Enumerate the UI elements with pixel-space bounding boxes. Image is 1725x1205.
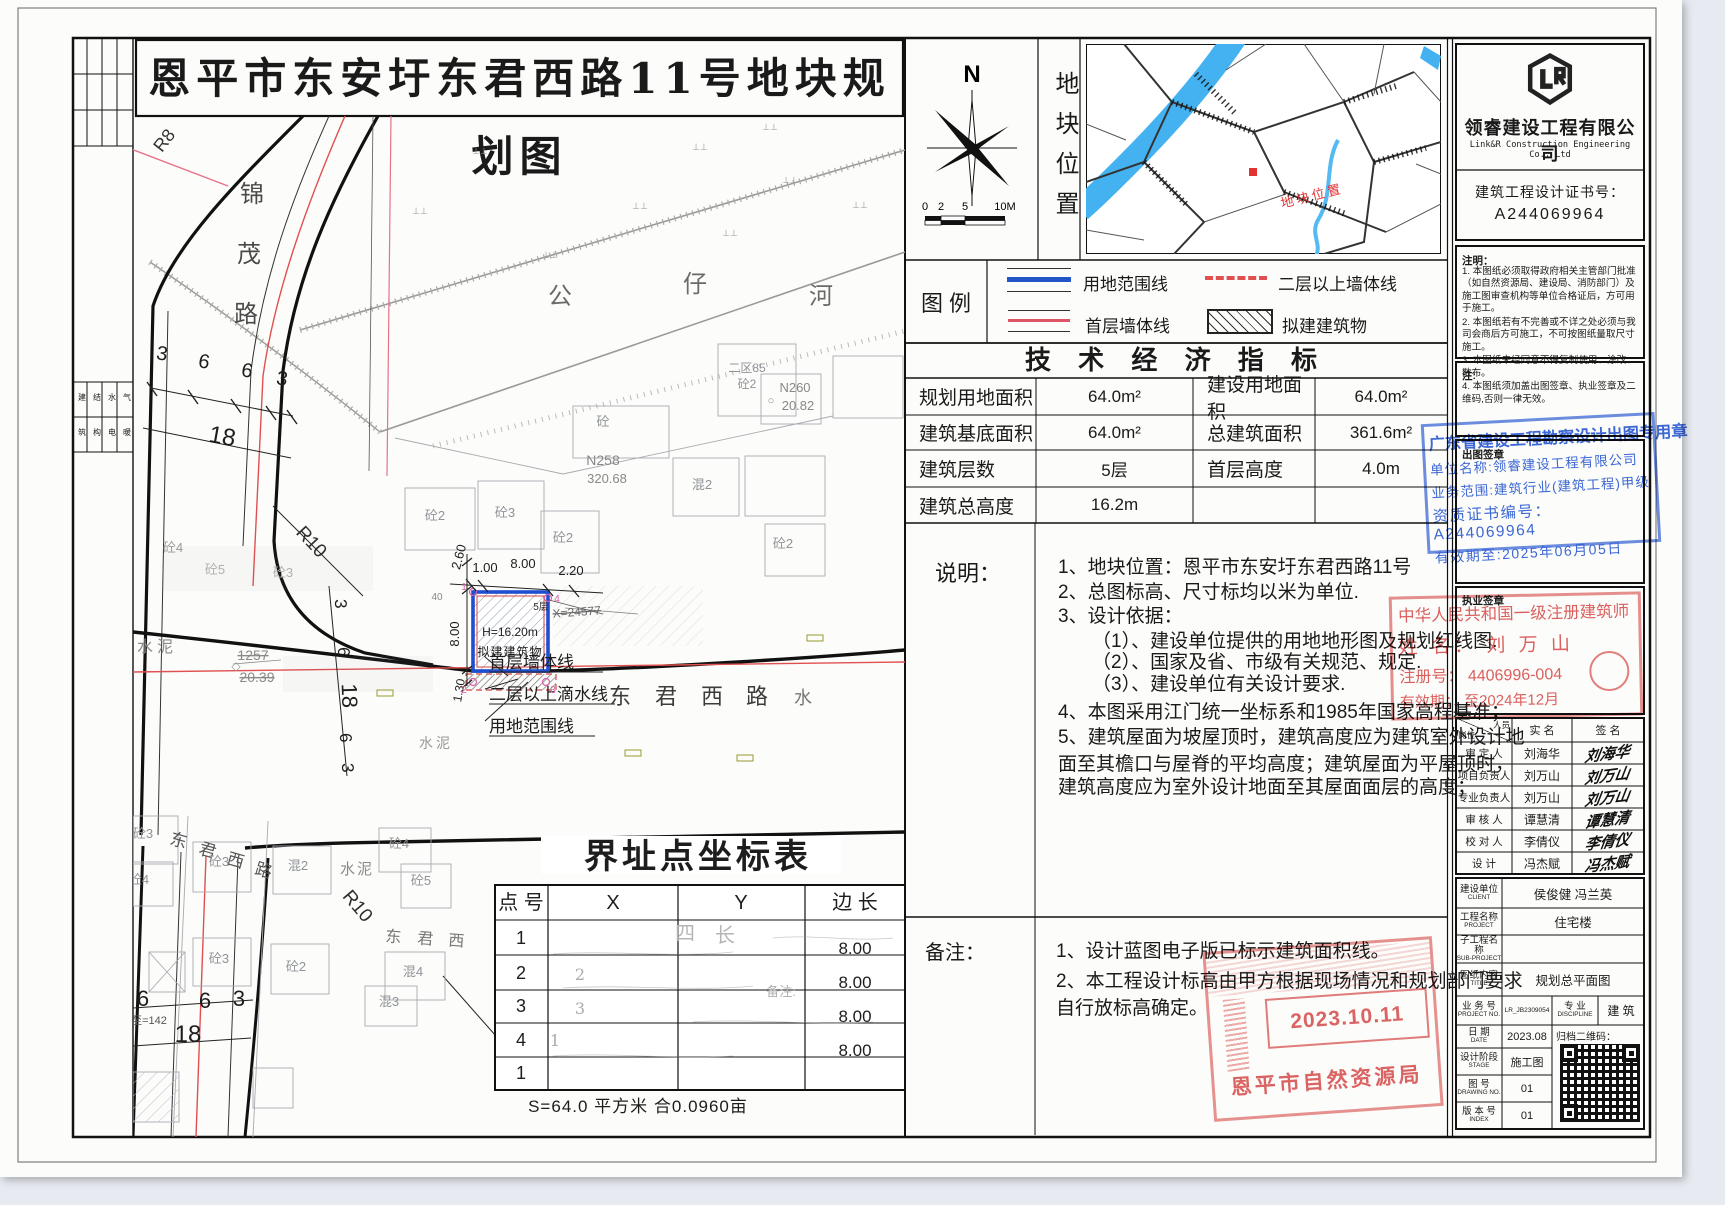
map-label: 3 [338, 763, 357, 773]
personnel-header-sign: 签 名 [1572, 718, 1644, 742]
coord-side-length: 8.00 [838, 1041, 871, 1060]
map-label: 砼5 [205, 562, 225, 577]
red-architect-seal-stamp: 中华人民共和国一级注册建筑师 姓 名： 刘 万 山 注册号： 4406996-0… [1389, 591, 1644, 720]
print-note-line: 4. 本图纸须加盖出图签章、执业签章及二维码,否则一律无效。 [1462, 381, 1640, 406]
project-no-value: LR_JB2309054 [1502, 996, 1552, 1025]
legend-swatch-proposed-building [1207, 309, 1273, 334]
personnel-role: 审 核 人 [1456, 808, 1512, 830]
project-no-label: 业 务 号PROJECT NO. [1456, 996, 1502, 1025]
legend-swatch-upper-wall-line [1205, 276, 1267, 280]
map-label: 路 [746, 684, 768, 709]
map-label: 6 [137, 986, 149, 1011]
map-label: N260 [779, 380, 810, 395]
map-label: 20.82 [782, 398, 815, 413]
coord-header: 点 号 [498, 891, 544, 914]
drawing-no-value: 01 [1502, 1075, 1552, 1102]
map-label: 砼3 [133, 826, 153, 841]
print-note-line: 1. 本图纸必须取得政府相关主管部门批准（如自然资源局、建设局、消防部门）及施工… [1462, 266, 1640, 316]
personnel-role: 项目负责人 [1456, 764, 1512, 786]
personnel-header-pos: 岗位 人员 [1456, 718, 1512, 742]
design-cert-label: 建筑工程设计证书号： [1458, 182, 1642, 202]
page-title: 恩平市东安圩东君西路11号地块规划图 [136, 40, 903, 116]
project-row-value: 侯俊健 冯兰英 [1502, 878, 1644, 908]
map-label: R10 [338, 886, 376, 926]
site-location-marker [1249, 168, 1257, 176]
map-label: ⊥⊥ [632, 201, 648, 211]
map-label: 东 [609, 684, 631, 709]
design-note-line: 1、地块位置：恩平市东安圩东君西路11号 [1058, 552, 1411, 579]
margin-discipline-char: 水 [106, 392, 118, 403]
map-label: 混2 [692, 477, 712, 492]
site-plan-map: 界址点坐标表点 号XY边 长123418.008.008.008.00231四长… [133, 116, 905, 1137]
map-label: 6 [336, 733, 355, 743]
map-label: 砼2 [286, 959, 306, 974]
index-value: 01 [1502, 1102, 1552, 1129]
map-label: 砼4 [133, 872, 149, 887]
map-label: 仔 [683, 271, 707, 298]
margin-discipline-char: 构 [91, 427, 103, 438]
project-row-value: 规划总平面图 [1502, 963, 1644, 996]
personnel-header-name: 实 名 [1512, 718, 1572, 742]
map-label: 8.00 [510, 556, 535, 571]
print-note-line: 2. 本图纸若有不完善或不详之处必须与我司会商后方可施工，不可按图纸量取尺寸施工… [1462, 317, 1640, 354]
map-label: ⊥⊥ [692, 142, 708, 152]
coord-ghost-mark: 备注: [766, 984, 796, 999]
map-label: 东 [385, 927, 402, 946]
discipline-label: 专 业DISCIPLINE [1552, 996, 1598, 1025]
legend-label-first-floor-wall: 首层墙体线 [1085, 312, 1170, 337]
map-label: 3 [550, 685, 556, 696]
discipline-value: 建 筑 [1598, 996, 1644, 1025]
approval-stamp-date-box: 2023.10.11 [1265, 988, 1430, 1049]
map-label: 锦 [240, 181, 264, 208]
svg-text:2: 2 [938, 201, 944, 213]
map-label: 砼2 [773, 536, 793, 551]
company-name-en: Link&R Construction Engineering Co., Ltd [1458, 140, 1642, 160]
map-label: 3 [275, 367, 290, 391]
personnel-name: 刘万山 [1512, 764, 1572, 786]
map-label: 混3 [379, 994, 399, 1009]
map-label: 18 [337, 683, 363, 708]
map-label: 6 [197, 350, 212, 374]
indicator-value: 64.0m² [1036, 415, 1193, 450]
indicator-label: 建设用地面积 [1193, 378, 1315, 415]
map-label: ⊥⊥ [472, 146, 488, 156]
design-note-line: （3）、建设单位有关设计要求. [1092, 669, 1345, 696]
coord-side-length: 8.00 [838, 973, 871, 992]
design-note-line: 建筑高度应为室外设计地面至其屋面面层的高度； [1058, 772, 1476, 799]
indicator-label: 建筑层数 [905, 450, 1036, 487]
stage-value: 施工图 [1502, 1048, 1552, 1075]
personnel-name: 刘万山 [1512, 786, 1572, 808]
personnel-signature: 刘万山 [1572, 764, 1644, 786]
personnel-signature: 刘海华 [1572, 742, 1644, 764]
map-label: H=16.20m [482, 625, 538, 639]
architect-seal-circle [1589, 651, 1630, 692]
margin-discipline-char: 电 [106, 427, 118, 438]
archive-qr-label: 归档二维码： [1556, 1028, 1616, 1043]
map-label: 1257 [237, 647, 268, 663]
map-label: 18 [175, 1021, 202, 1048]
map-label: 河 [809, 283, 833, 310]
map-label: 砼3 [209, 951, 229, 966]
indicator-value: 16.2m [1036, 487, 1193, 523]
map-label: 首层墙体线 [489, 653, 574, 672]
personnel-role: 审 定 人 [1456, 742, 1512, 764]
margin-discipline-char: 筑 [76, 427, 88, 438]
map-label: 20.39 [239, 669, 274, 685]
map-label: 18 [207, 421, 238, 452]
project-row-label: 子工程名称SUB-PROJECT [1456, 935, 1502, 963]
index-label: 版 本 号INDEX [1456, 1102, 1502, 1129]
map-label: ⊥⊥ [722, 228, 738, 238]
map-label: R8 [149, 125, 179, 155]
map-label: 水泥 [419, 735, 453, 751]
coord-ghost-value: 1 [550, 1031, 560, 1050]
map-label: 水 [794, 688, 812, 708]
personnel-name: 刘海华 [1512, 742, 1572, 764]
map-label: ○ [768, 395, 775, 407]
map-label: 6 [334, 647, 353, 657]
map-label: 2 [461, 685, 467, 696]
map-label: 8.00 [447, 621, 462, 646]
map-label: 公 [548, 283, 572, 310]
personnel-name: 冯杰赋 [1512, 852, 1572, 874]
map-label: 西 [448, 932, 465, 950]
indicators-title: 技 术 经 济 指 标 [905, 343, 1447, 378]
coord-ghost-value: 2 [575, 965, 585, 984]
coord-table-footer: S=64.0 平方米 合0.0960亩 [528, 1097, 748, 1116]
map-label: 砼4 [389, 836, 409, 851]
map-label: 40 [431, 592, 443, 603]
svg-text:5: 5 [962, 201, 968, 213]
legend-swatch-site-boundary [1007, 268, 1071, 292]
personnel-name: 谭慧清 [1512, 808, 1572, 830]
indicator-label: 规划用地面积 [905, 378, 1036, 415]
legend-label-site-boundary: 用地范围线 [1083, 270, 1168, 295]
map-label: ⊥⊥ [762, 122, 778, 132]
coord-header: X [606, 892, 619, 914]
map-label: 用地范围线 [489, 717, 574, 736]
map-label: 水泥 [137, 638, 177, 656]
coord-table-title: 界址点坐标表 [584, 837, 812, 877]
map-label: ⊥⊥ [782, 175, 798, 185]
design-note-line: 3、设计依据： [1058, 601, 1183, 628]
map-label: 砼5 [411, 873, 431, 888]
legend-title: 图 例 [905, 260, 987, 343]
map-label: 砼2 [553, 530, 573, 545]
map-label: 4 [554, 594, 560, 605]
personnel-role: 校 对 人 [1456, 830, 1512, 852]
map-label: 路 [253, 859, 275, 882]
map-label: 1.00 [472, 560, 497, 575]
coord-point-no: 3 [516, 996, 526, 1016]
approval-stamp-scribble [1223, 998, 1250, 1071]
location-panel-label: 地块位置 [1040, 48, 1082, 253]
company-logo [1523, 52, 1577, 111]
margin-discipline-char: 结 [91, 392, 103, 403]
indicator-value: 64.0m² [1315, 378, 1447, 415]
remarks-section-label: 备注： [925, 936, 985, 965]
compass-panel: N 0 2 5 10M [905, 38, 1038, 260]
project-row-value: 住宅楼 [1502, 908, 1644, 935]
map-label: 砼3 [273, 565, 293, 580]
map-label: 至=142 [133, 1015, 167, 1027]
map-label: ◇ [231, 659, 241, 673]
legend-swatch-first-floor-wall [1008, 310, 1070, 332]
map-label: ⊥⊥ [542, 250, 558, 260]
map-label: 砼4 [163, 540, 183, 555]
map-label: 5层 [533, 601, 549, 613]
map-label: 2.60 [448, 543, 469, 571]
design-cert-number: A244069964 [1458, 206, 1642, 224]
map-label: 水泥 [340, 861, 374, 878]
blue-issue-seal-stamp: 广东省建设工程勘察设计出图专用章 单位名称:领睿建设工程有限公司 业务范围:建筑… [1421, 412, 1661, 554]
personnel-signature: 冯杰赋 [1572, 852, 1644, 874]
legend-label-upper-wall-line: 二层以上墙体线 [1278, 270, 1397, 295]
map-label: 君 [417, 930, 434, 948]
note-box-label: 注: [1462, 368, 1476, 383]
svg-text:10M: 10M [994, 201, 1015, 213]
coord-header: 边 长 [832, 891, 878, 914]
coord-point-no: 2 [516, 963, 526, 983]
date-value: 2023.08 [1502, 1025, 1552, 1048]
margin-discipline-char: 建 [76, 392, 88, 403]
indicator-label: 建筑基底面积 [905, 415, 1036, 450]
indicator-label [1193, 487, 1315, 523]
map-label: 君 [655, 684, 677, 709]
stage-label: 设计阶段STAGE [1456, 1048, 1502, 1075]
map-label: ⊥⊥ [852, 200, 868, 210]
personnel-signature: 刘万山 [1572, 786, 1644, 808]
svg-text:0: 0 [922, 201, 928, 213]
map-label: 砼2 [425, 508, 445, 523]
coord-ghost-value: 3 [575, 999, 585, 1018]
map-label: 二区85 [728, 361, 766, 375]
map-label: ⊥⊥ [412, 206, 428, 216]
legend-label-proposed-building: 拟建建筑物 [1282, 312, 1367, 337]
map-label: 2.20 [558, 563, 583, 578]
map-label: 茂 [237, 241, 261, 268]
coord-point-no: 1 [516, 1063, 526, 1083]
map-label: 砼3 [209, 854, 229, 869]
personnel-signature: 谭慧清 [1572, 808, 1644, 830]
date-label: 日 期DATE [1456, 1025, 1502, 1048]
map-label: 砼2 [738, 377, 757, 391]
coord-header: Y [734, 892, 747, 914]
map-label: 混4 [403, 964, 423, 979]
map-label: 320.68 [587, 471, 627, 486]
coord-point-no: 4 [516, 1030, 526, 1050]
personnel-role: 设 计 [1456, 852, 1512, 874]
map-label: 6 [240, 359, 255, 383]
scanned-planning-drawing: 建筑结构水电气暖 恩平市东安圩东君西路11号地块规划图 [0, 0, 1725, 1205]
map-label: 二层以上滴水线 [489, 685, 608, 704]
indicator-label: 首层高度 [1193, 450, 1315, 487]
project-row-value [1502, 935, 1644, 963]
red-approval-stamp: 2023.10.11 恩平市自然资源局 [1202, 936, 1443, 1122]
personnel-name: 李倩仪 [1512, 830, 1572, 852]
project-row-label: 图纸内容TITLE [1456, 963, 1502, 996]
personnel-role: 专业负责人 [1456, 786, 1512, 808]
indicator-label: 建筑总高度 [905, 487, 1036, 523]
coord-ghost-mark: 长 [715, 924, 735, 947]
map-label: 1 [461, 582, 467, 593]
indicator-label: 总建筑面积 [1193, 415, 1315, 450]
scale-bar: 0 2 5 10M [922, 201, 1016, 225]
map-label: 6 [199, 988, 211, 1013]
north-label: N [963, 61, 980, 88]
map-label: 3 [233, 986, 245, 1011]
design-note-line: 5、建筑屋面为坡屋顶时，建筑高度应为建筑室外设计地 [1058, 722, 1525, 749]
margin-discipline-char: 暖 [121, 427, 133, 438]
indicator-value: 64.0m² [1036, 378, 1193, 415]
map-label: 3 [331, 599, 350, 609]
notes-section-label: 说明： [935, 556, 1001, 588]
archive-qr-code [1560, 1044, 1640, 1122]
remark-line: 自行放标高确定。 [1056, 993, 1208, 1020]
indicator-value: 5层 [1036, 450, 1193, 487]
map-label: 混2 [288, 858, 308, 873]
map-label: 西 [701, 684, 723, 709]
personnel-signature: 李倩仪 [1572, 830, 1644, 852]
drawing-paper: 建筑结构水电气暖 恩平市东安圩东君西路11号地块规划图 [0, 0, 1682, 1177]
coord-side-length: 8.00 [838, 939, 871, 958]
city-location-map: 地块位置 [1086, 44, 1441, 254]
boundary-coordinate-table: 界址点坐标表点 号XY边 长123418.008.008.008.00231四长… [495, 836, 905, 1116]
project-row-label: 工程名称PROJECT [1456, 908, 1502, 935]
map-label: N258 [586, 452, 620, 468]
drawing-no-label: 图 号DRAWING NO. [1456, 1075, 1502, 1102]
print-note-line: 3. 本图纸未经同意不得复制使用、涂改、散布。 [1462, 355, 1640, 380]
coord-point-no: 1 [516, 928, 526, 948]
coord-ghost-mark: 四 [675, 923, 695, 945]
map-label: 砼 [596, 414, 609, 429]
margin-discipline-char: 气 [121, 392, 133, 403]
design-note-line: 2、总图标高、尺寸标均以米为单位. [1058, 577, 1359, 604]
map-label: 砼3 [495, 505, 515, 520]
map-label: 路 [234, 301, 258, 328]
project-row-label: 建设单位CLIENT [1456, 878, 1502, 908]
